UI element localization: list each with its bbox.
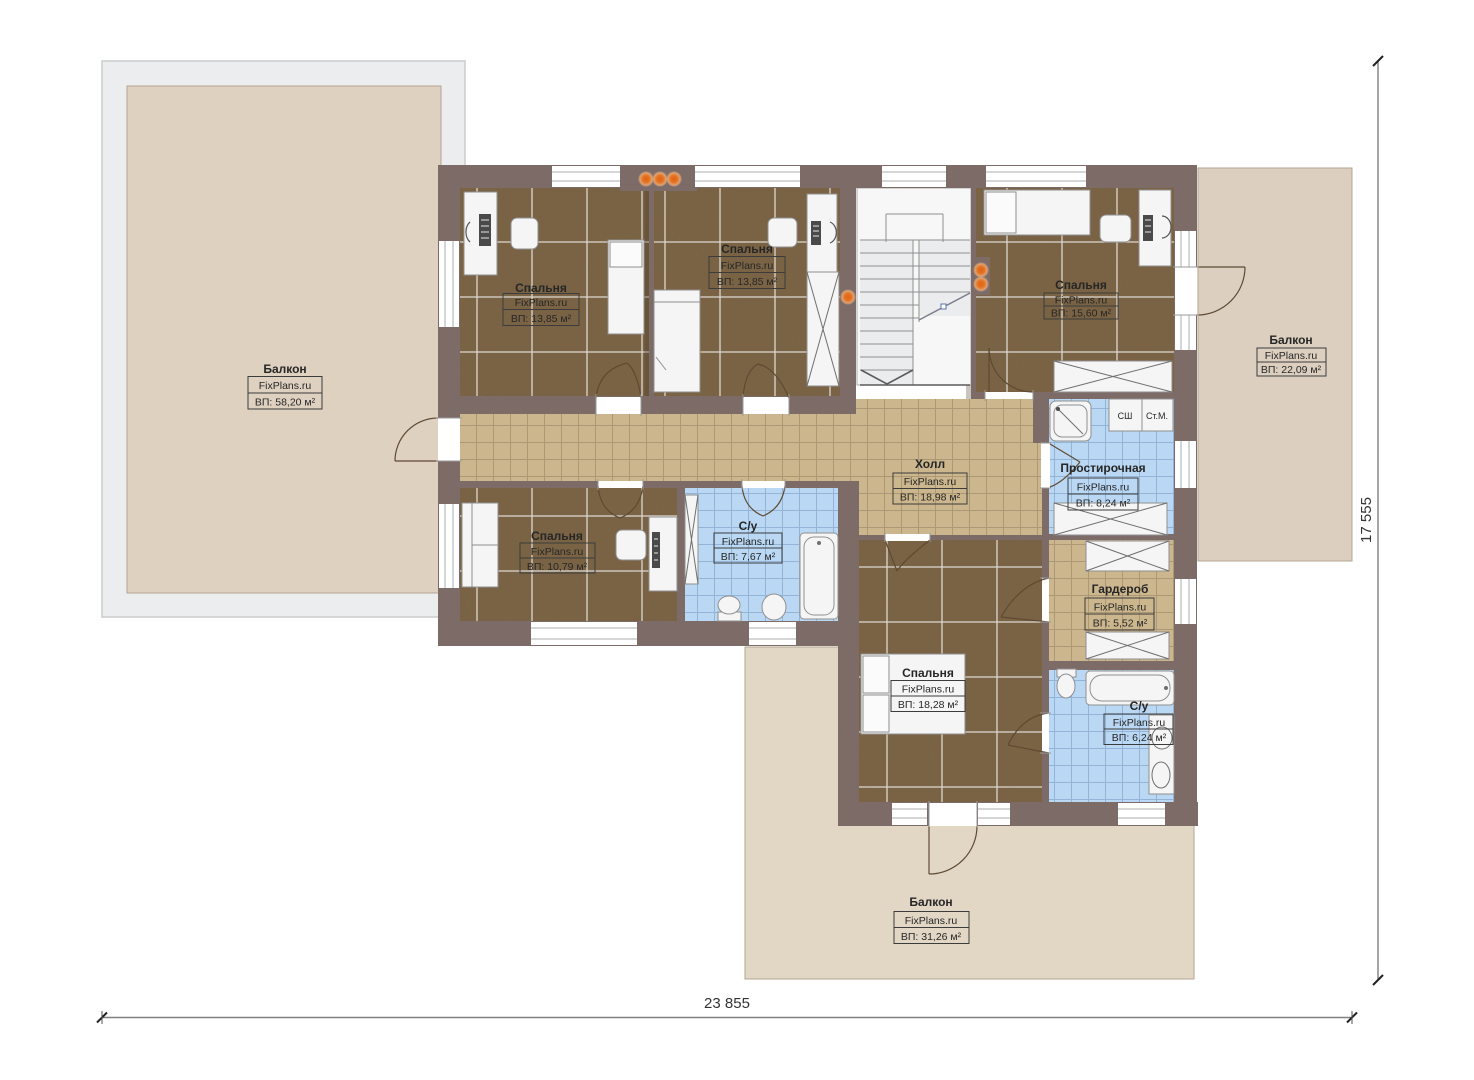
svg-text:ВП: 18,28 м²: ВП: 18,28 м² [898,699,959,711]
svg-text:ВП: 15,60 м²: ВП: 15,60 м² [1051,308,1112,320]
svg-text:Балкон: Балкон [263,362,306,376]
svg-text:FixPlans.ru: FixPlans.ru [905,915,958,927]
svg-text:FixPlans.ru: FixPlans.ru [721,260,774,272]
svg-text:Спальня: Спальня [515,281,567,295]
svg-text:ВП: 13,85 м²: ВП: 13,85 м² [511,313,572,325]
svg-text:FixPlans.ru: FixPlans.ru [1113,717,1166,729]
svg-text:Спальня: Спальня [721,242,773,256]
svg-text:ВП: 13,85 м²: ВП: 13,85 м² [717,276,778,288]
svg-text:FixPlans.ru: FixPlans.ru [1077,482,1130,494]
svg-text:ВП: 31,26 м²: ВП: 31,26 м² [901,931,962,943]
svg-text:Спальня: Спальня [1055,278,1107,292]
svg-text:Балкон: Балкон [909,895,952,909]
svg-text:FixPlans.ru: FixPlans.ru [1265,350,1318,362]
svg-text:ВП: 18,98 м²: ВП: 18,98 м² [900,492,961,504]
svg-text:FixPlans.ru: FixPlans.ru [531,546,584,558]
svg-text:FixPlans.ru: FixPlans.ru [722,536,775,548]
svg-text:FixPlans.ru: FixPlans.ru [1094,602,1147,614]
svg-text:ВП: 8,24 м²: ВП: 8,24 м² [1076,498,1131,510]
svg-text:С/у: С/у [1130,699,1149,713]
svg-text:Спальня: Спальня [531,529,583,543]
svg-text:ВП: 22,09 м²: ВП: 22,09 м² [1261,364,1322,376]
svg-text:Гардероб: Гардероб [1092,582,1149,596]
svg-text:ВП: 6,24 м²: ВП: 6,24 м² [1112,732,1167,744]
svg-text:Спальня: Спальня [902,666,954,680]
svg-text:С/у: С/у [739,519,758,533]
svg-text:FixPlans.ru: FixPlans.ru [904,476,957,488]
svg-text:СШ: СШ [1118,411,1133,421]
svg-text:FixPlans.ru: FixPlans.ru [259,380,312,392]
svg-text:ВП: 7,67 м²: ВП: 7,67 м² [721,551,776,563]
svg-text:ВП: 5,52 м²: ВП: 5,52 м² [1093,618,1148,630]
svg-text:Простирочная: Простирочная [1060,461,1145,475]
svg-text:Ст.М.: Ст.М. [1146,411,1168,421]
svg-text:Холл: Холл [915,457,945,471]
svg-text:FixPlans.ru: FixPlans.ru [1055,295,1108,307]
svg-text:23 855: 23 855 [704,995,750,1012]
svg-text:Балкон: Балкон [1269,333,1312,347]
svg-text:17 555: 17 555 [1358,497,1375,543]
svg-text:FixPlans.ru: FixPlans.ru [515,297,568,309]
svg-text:ВП: 58,20 м²: ВП: 58,20 м² [255,397,316,409]
svg-text:ВП: 10,79 м²: ВП: 10,79 м² [527,561,588,573]
svg-text:FixPlans.ru: FixPlans.ru [902,684,955,696]
